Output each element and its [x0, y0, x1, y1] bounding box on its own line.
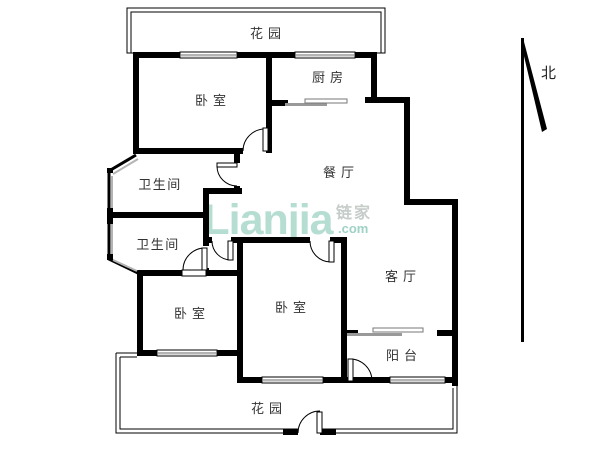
label-garden-top: 花园 — [250, 26, 286, 41]
watermark-cjk: 链家 — [336, 203, 372, 222]
label-living-room: 客厅 — [385, 269, 421, 284]
label-balcony: 阳台 — [386, 348, 422, 363]
label-dining-room: 餐厅 — [323, 165, 359, 180]
label-kitchen: 厨房 — [312, 70, 348, 85]
label-garden-bottom: 花园 — [251, 401, 287, 416]
watermark-domain: .com — [338, 221, 368, 236]
label-bedroom-bottom-left: 卧室 — [174, 306, 210, 321]
label-bathroom-top: 卫生间 — [138, 177, 182, 192]
label-bedroom-bottom-middle: 卧室 — [275, 300, 311, 315]
label-bathroom-bottom: 卫生间 — [136, 237, 180, 252]
watermark-brand: Lianjia — [203, 196, 334, 244]
north-label: 北 — [541, 65, 556, 82]
floorplan-canvas: Lianjia 链家 .com — [0, 0, 600, 450]
label-bedroom-top-left: 卧室 — [195, 93, 231, 108]
